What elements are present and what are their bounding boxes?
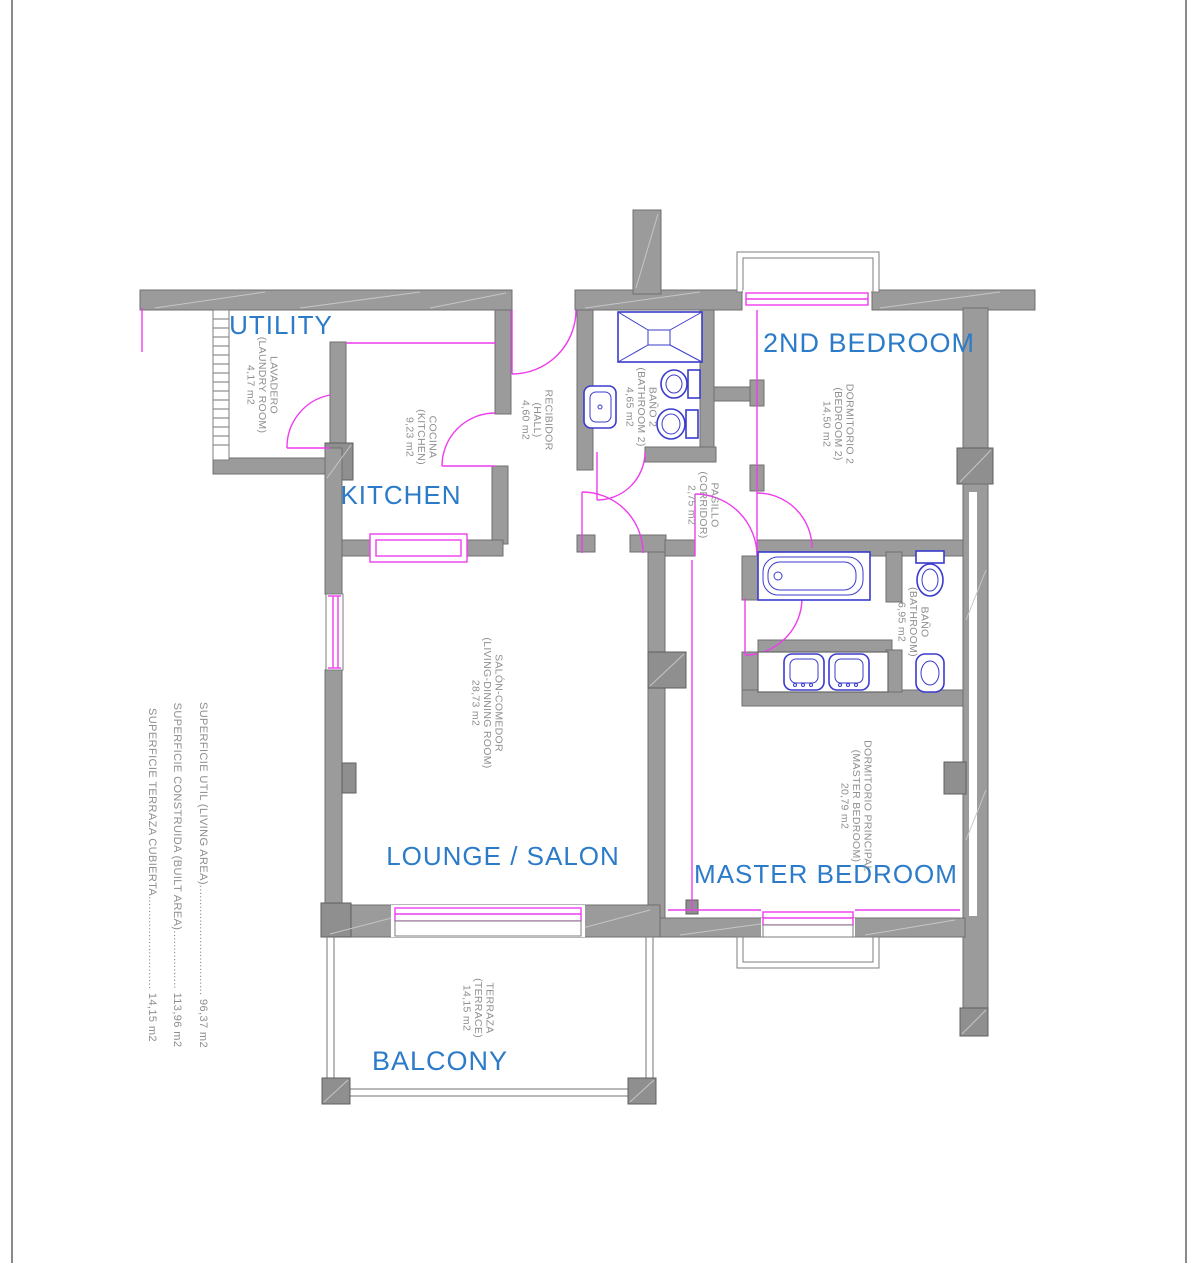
wall-utility-hatched xyxy=(213,310,229,460)
svg-text:SALÓN-COMEDOR: SALÓN-COMEDOR xyxy=(493,654,506,752)
svg-text:TERRAZA: TERRAZA xyxy=(484,982,496,1033)
bathtub xyxy=(758,552,870,600)
window-bedroom2-top xyxy=(737,252,879,310)
shower-bathroom2 xyxy=(618,312,702,362)
annotation-hall: RECIBIDOR (HALL) 4,60 m2 xyxy=(520,389,555,450)
wall-utility-bottom xyxy=(213,458,331,474)
svg-text:DORMITORIO 2: DORMITORIO 2 xyxy=(844,384,856,464)
wall-utility-kitchen xyxy=(330,342,346,452)
svg-text:(CORRIDOR): (CORRIDOR) xyxy=(697,471,709,538)
svg-text:BAÑO 2: BAÑO 2 xyxy=(647,387,660,427)
svg-text:(BATHROOM): (BATHROOM) xyxy=(907,587,919,657)
svg-text:COCINA: COCINA xyxy=(427,416,439,459)
annotation-utility: LAVADERO (LAUNDRY ROOM) 4,17 m2 xyxy=(245,337,280,434)
door-entrance xyxy=(512,310,576,374)
svg-text:20,79 m2: 20,79 m2 xyxy=(839,783,851,829)
door-bathroom2 xyxy=(597,452,645,500)
svg-text:(TERRACE): (TERRACE) xyxy=(472,978,484,1038)
annotation-lounge: SALÓN-COMEDOR (LIVING-DINNING ROOM) 28,7… xyxy=(470,637,506,768)
svg-text:4,17 m2: 4,17 m2 xyxy=(245,365,257,405)
svg-text:BAÑO: BAÑO xyxy=(919,607,932,638)
svg-text:(HALL): (HALL) xyxy=(531,402,543,437)
svg-text:14,50 m2: 14,50 m2 xyxy=(821,401,833,447)
svg-text:9,23 m2: 9,23 m2 xyxy=(404,417,416,457)
bidet-bathroom xyxy=(916,654,944,692)
wall-bath2-bottom xyxy=(645,447,716,462)
label-master: MASTER BEDROOM xyxy=(694,859,958,889)
svg-text:PASILLO: PASILLO xyxy=(709,482,721,527)
annotation-bedroom2: DORMITORIO 2 (BEDROOM 2) 14,50 m2 xyxy=(821,384,856,464)
door-utility xyxy=(287,395,330,448)
label-balcony: BALCONY xyxy=(372,1046,508,1076)
svg-text:28,73 m2: 28,73 m2 xyxy=(470,680,482,726)
svg-text:(BATHROOM 2): (BATHROOM 2) xyxy=(635,367,647,446)
svg-text:6,95 m2: 6,95 m2 xyxy=(896,602,908,642)
window-lounge-left xyxy=(326,594,343,670)
floor-plan-sheet: UTILITY KITCHEN 2ND BEDROOM LOUNGE / SAL… xyxy=(0,0,1200,1263)
svg-text:14,15 m2: 14,15 m2 xyxy=(461,985,473,1031)
svg-text:2,75 m2: 2,75 m2 xyxy=(686,485,698,525)
svg-text:4,65 m2: 4,65 m2 xyxy=(624,387,636,427)
wall-kitchen-right-lower xyxy=(492,466,508,544)
kitchen-pass-through-window xyxy=(370,534,467,562)
svg-text:RECIBIDOR: RECIBIDOR xyxy=(543,389,555,450)
wall-kitchen-right-upper xyxy=(495,310,511,414)
svg-text:4,60 m2: 4,60 m2 xyxy=(520,400,532,440)
bidet-bathroom2 xyxy=(657,409,698,439)
svg-text:LAVADERO: LAVADERO xyxy=(268,356,280,414)
annotation-kitchen: COCINA (KITCHEN) 9,23 m2 xyxy=(404,409,439,465)
svg-text:(MASTER BEDROOM): (MASTER BEDROOM) xyxy=(850,750,862,863)
summary-living-area: SUPERFICIE UTIL (LIVING AREA)...........… xyxy=(197,702,209,1048)
door-kitchen xyxy=(442,413,495,466)
summary-terrace-area: SUPERFICIE TERRAZA CUBIERTA.............… xyxy=(146,708,158,1042)
annotation-balcony: TERRAZA (TERRACE) 14,15 m2 xyxy=(461,978,496,1038)
svg-text:(KITCHEN): (KITCHEN) xyxy=(415,409,427,465)
label-kitchen: KITCHEN xyxy=(340,480,461,510)
annotation-master: DORMITORIO PRINCIPAL (MASTER BEDROOM) 20… xyxy=(839,740,874,872)
svg-text:(LIVING-DINNING ROOM): (LIVING-DINNING ROOM) xyxy=(481,637,493,768)
floor-plan-drawing: UTILITY KITCHEN 2ND BEDROOM LOUNGE / SAL… xyxy=(0,0,1200,1263)
toilet-bathroom2 xyxy=(661,370,700,398)
label-bedroom2: 2ND BEDROOM xyxy=(763,328,975,358)
wall-lounge-master xyxy=(648,552,665,918)
annotation-bathroom2: BAÑO 2 (BATHROOM 2) 4,65 m2 xyxy=(624,367,660,446)
label-lounge: LOUNGE / SALON xyxy=(386,841,620,871)
wall-left-lower xyxy=(325,670,342,907)
svg-text:DORMITORIO PRINCIPAL: DORMITORIO PRINCIPAL xyxy=(862,740,874,872)
svg-text:(BEDROOM 2): (BEDROOM 2) xyxy=(832,387,844,460)
summary-built-area: SUPERFICIE CONSTRUIDA (BUILT AREA)......… xyxy=(171,703,183,1048)
vanity-double-sink xyxy=(758,652,888,692)
wall-bathroom-mid xyxy=(758,640,892,652)
area-summary: SUPERFICIE UTIL (LIVING AREA)...........… xyxy=(146,702,209,1048)
label-utility: UTILITY xyxy=(229,310,333,340)
annotation-corridor: PASILLO (CORRIDOR) 2,75 m2 xyxy=(686,471,721,538)
svg-text:(LAUNDRY ROOM): (LAUNDRY ROOM) xyxy=(256,337,268,434)
window-lounge-bottom xyxy=(391,905,585,937)
sink-bathroom2 xyxy=(584,386,616,428)
